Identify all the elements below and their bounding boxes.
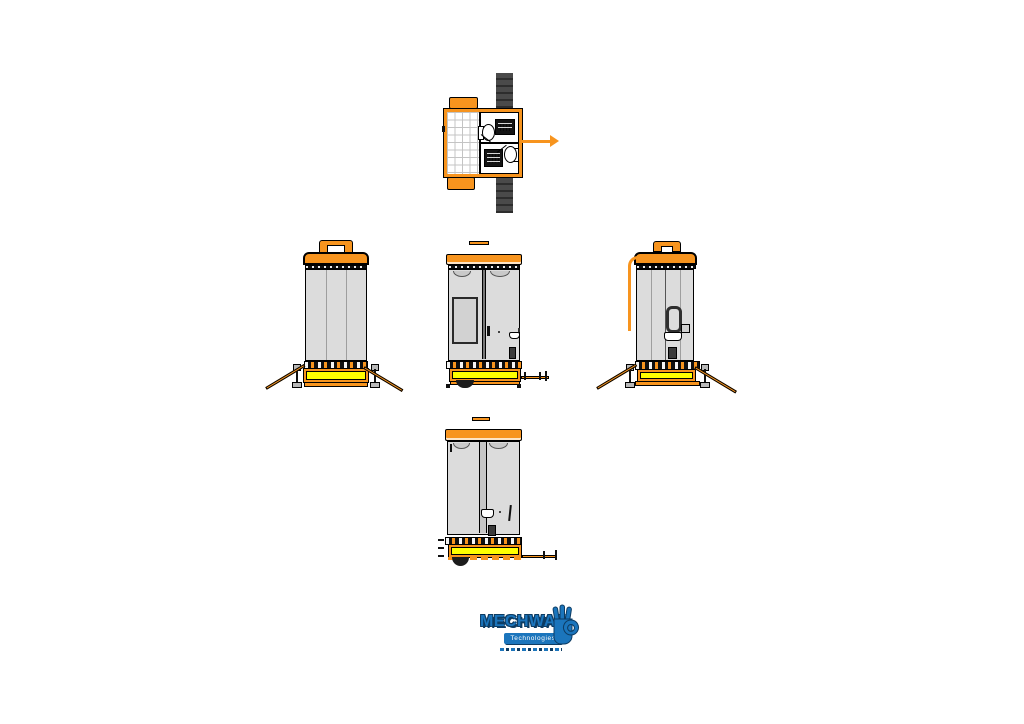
front-elevation (440, 239, 560, 392)
plan-tiled-room (447, 112, 479, 174)
wall-dispenser (681, 324, 690, 333)
wheel (452, 557, 469, 566)
base-skirt (304, 369, 368, 382)
ok-hand-icon (549, 604, 581, 648)
plan-wall-horizontal (481, 142, 519, 144)
wheel (456, 380, 474, 388)
plan-door-mark (442, 126, 445, 132)
section-arrow-line (522, 140, 550, 143)
washbasin (481, 509, 494, 518)
panel-seam (326, 270, 327, 360)
pipe-mark (499, 511, 501, 513)
plan-view (442, 73, 564, 218)
side-elevation-left (264, 239, 410, 392)
washbasin (509, 332, 520, 339)
water-tank-top (449, 97, 478, 109)
dimension-tick (438, 547, 444, 549)
dimension-tick (438, 539, 444, 541)
panel-seam (651, 270, 652, 360)
roof-cap (446, 254, 522, 265)
plan-spec-box-1 (495, 119, 515, 135)
rear-section-view (438, 416, 564, 572)
cabin-body (636, 269, 694, 361)
center-divider (479, 442, 487, 533)
toilet-bowl (504, 146, 517, 163)
roof-vent-cap (469, 241, 489, 245)
panel-seam (346, 270, 347, 360)
pipe-mark (508, 505, 512, 521)
door-vent-left (453, 443, 470, 449)
waste-bin (668, 347, 677, 359)
tow-bar (522, 555, 557, 558)
tow-bar-tick (539, 372, 541, 380)
cabin-body (447, 441, 520, 535)
water-tank-bottom (447, 177, 475, 190)
door-handle (487, 326, 490, 336)
logo: MECHWAT Technologies (478, 604, 590, 656)
base-grille (445, 537, 522, 545)
section-arrow-head (550, 135, 559, 147)
base-skirt (638, 370, 695, 381)
base-rail (304, 382, 368, 387)
roof-cap (445, 429, 522, 441)
roof-vent-cap (472, 417, 490, 421)
roof-handle (653, 241, 681, 252)
roof-cap (634, 252, 697, 265)
tow-bar-tick (524, 372, 526, 380)
stabilizer-arm-right (363, 366, 403, 392)
jack-pad (700, 382, 710, 388)
technical-drawing-canvas: MECHWAT Technologies (0, 0, 1024, 724)
logo-fine-print (500, 648, 562, 651)
washbasin (664, 332, 682, 341)
corner-foot (517, 384, 521, 388)
grab-rail (666, 306, 682, 333)
base-rail (635, 381, 700, 386)
dimension-tick (438, 555, 444, 557)
plan-toilet-2 (503, 145, 519, 163)
base-grille (635, 361, 700, 370)
corner-foot (446, 384, 450, 388)
jack-pad (370, 382, 380, 388)
tap (518, 328, 520, 332)
door-knob (498, 331, 500, 333)
cabin-body (305, 269, 367, 361)
jack-pad (292, 382, 302, 388)
cabin-body (448, 269, 520, 361)
tow-bar-tick (555, 550, 557, 560)
jack-pad (625, 382, 635, 388)
waste-bin (488, 525, 496, 536)
door-vent-right (490, 271, 510, 277)
base-skirt (449, 545, 521, 557)
toilet-bowl (482, 124, 495, 141)
plan-spec-box-2 (484, 149, 503, 167)
corner-bracket (450, 444, 452, 452)
tow-bar-tick (545, 371, 547, 381)
door-recess-panel (452, 297, 478, 344)
roof-cap (303, 252, 369, 265)
door-vent-left (453, 271, 471, 277)
base-grille (304, 361, 368, 369)
side-elevation-right (594, 239, 746, 392)
center-divider (482, 270, 486, 359)
plan-cabin-outline (444, 109, 522, 177)
waste-bin (509, 347, 516, 359)
door-vent-right (489, 443, 508, 449)
tow-bar-tick (543, 551, 545, 559)
base-grille (446, 361, 522, 369)
